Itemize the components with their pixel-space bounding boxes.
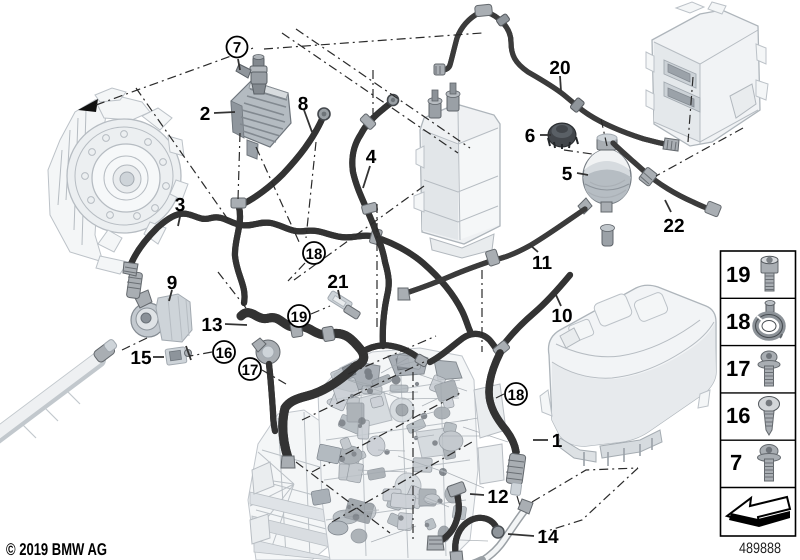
svg-text:13: 13	[201, 315, 222, 336]
svg-text:22: 22	[663, 216, 684, 237]
svg-text:7: 7	[233, 40, 241, 57]
svg-text:16: 16	[216, 345, 233, 362]
svg-text:20: 20	[549, 58, 570, 79]
svg-text:17: 17	[242, 362, 259, 379]
svg-text:14: 14	[537, 527, 559, 548]
svg-text:19: 19	[291, 309, 308, 326]
svg-text:6: 6	[525, 126, 536, 147]
svg-text:19: 19	[726, 262, 750, 287]
svg-text:18: 18	[306, 246, 323, 263]
svg-text:11: 11	[532, 253, 553, 274]
svg-text:8: 8	[298, 94, 309, 115]
svg-text:10: 10	[551, 306, 572, 327]
svg-text:12: 12	[487, 487, 508, 508]
svg-text:18: 18	[508, 387, 525, 404]
svg-text:5: 5	[562, 164, 573, 185]
svg-text:7: 7	[730, 450, 742, 475]
svg-text:17: 17	[726, 356, 750, 381]
svg-text:1: 1	[552, 431, 563, 452]
svg-text:4: 4	[366, 147, 377, 168]
svg-text:16: 16	[726, 403, 750, 428]
svg-text:21: 21	[327, 272, 349, 293]
svg-text:© 2019 BMW AG: © 2019 BMW AG	[6, 540, 107, 559]
svg-text:489888: 489888	[739, 540, 781, 557]
svg-text:18: 18	[726, 309, 750, 334]
svg-text:2: 2	[200, 104, 211, 125]
svg-text:3: 3	[175, 195, 186, 216]
svg-text:15: 15	[130, 348, 152, 369]
svg-text:9: 9	[167, 273, 178, 294]
